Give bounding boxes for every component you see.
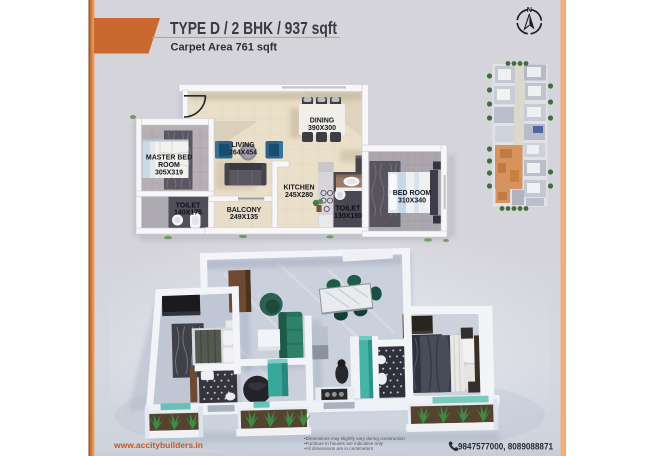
svg-text:BED ROOM: BED ROOM: [393, 190, 432, 197]
svg-text:TYPE D / 2 BHK / 937 sqft: TYPE D / 2 BHK / 937 sqft: [170, 18, 337, 38]
svg-text:245X280: 245X280: [285, 192, 313, 199]
svg-text:140X175: 140X175: [174, 210, 202, 217]
svg-text:KITCHEN: KITCHEN: [283, 185, 314, 192]
svg-text:•All dimensions are in centime: •All dimensions are in centimeters: [304, 446, 374, 451]
svg-text:Carpet Area 761 sqft: Carpet Area 761 sqft: [171, 42, 278, 54]
svg-text:N: N: [527, 5, 532, 14]
svg-text:390X300: 390X300: [308, 125, 336, 132]
svg-text:305X319: 305X319: [155, 170, 183, 177]
svg-text:www.accitybuilders.in: www.accitybuilders.in: [113, 440, 203, 450]
svg-text:264X454: 264X454: [229, 150, 257, 157]
svg-text:MASTER BED: MASTER BED: [146, 155, 192, 162]
svg-text:130X180: 130X180: [334, 213, 362, 220]
svg-text:249X135: 249X135: [230, 214, 258, 221]
svg-text:310X340: 310X340: [398, 198, 426, 205]
svg-text:BALCONY: BALCONY: [227, 207, 262, 214]
svg-text:ROOM: ROOM: [158, 162, 180, 169]
svg-text:DINING: DINING: [310, 118, 335, 125]
svg-text:TOILET: TOILET: [176, 203, 201, 210]
svg-text:LIVING: LIVING: [231, 142, 255, 149]
svg-text:TOILET: TOILET: [336, 206, 361, 213]
svg-text:9847577000, 8089088871: 9847577000, 8089088871: [458, 441, 553, 451]
